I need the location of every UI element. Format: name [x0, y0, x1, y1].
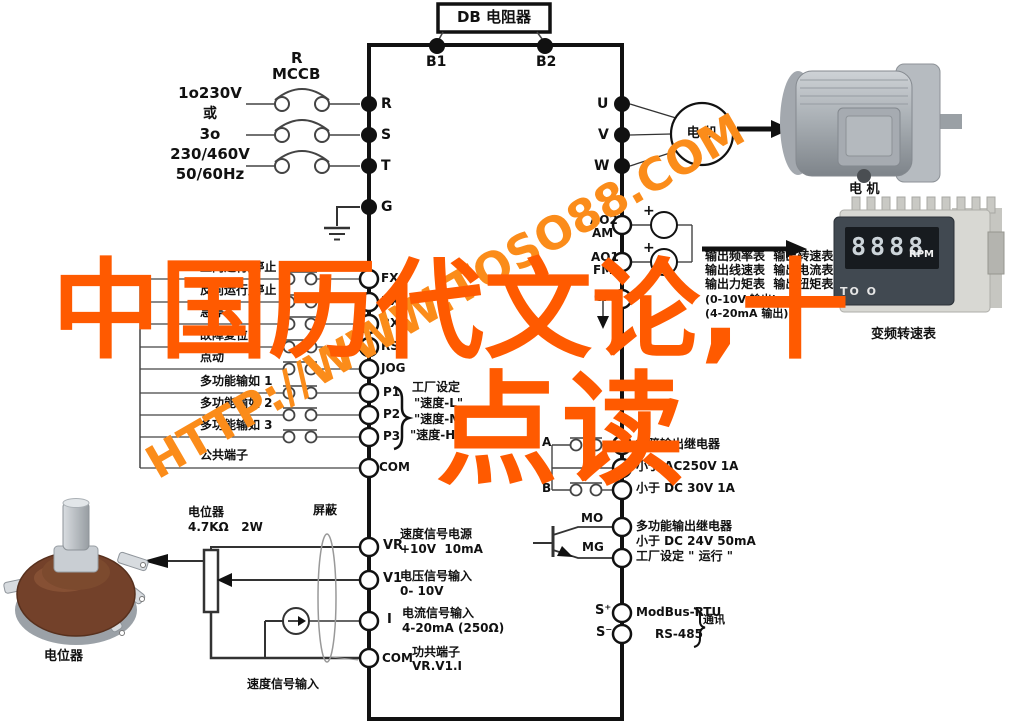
terminal-com: COM	[379, 461, 410, 475]
shield-ellipse	[318, 534, 358, 662]
shield-label: 屏蔽	[313, 504, 337, 518]
terminal-i: I	[387, 613, 392, 628]
power-spec-1: 1o230V	[160, 85, 260, 102]
potentiometer-symbol-wiring	[168, 547, 360, 658]
mo-desc-1: 多功能输出继电器	[636, 520, 732, 534]
rpm-display-unit: RPM	[909, 249, 934, 260]
mo-desc-3: 工厂设定 " 运行 "	[636, 550, 733, 564]
v1-desc-1: 电压信号输入	[400, 570, 472, 584]
comm-label: 通讯	[703, 614, 725, 627]
vr-desc-2: +10V 10mA	[400, 543, 483, 557]
terminal-mg: MG	[582, 541, 604, 555]
mccb-label: MCCB	[272, 66, 320, 83]
com2-desc-1: 功共端子	[412, 646, 460, 660]
vr-desc-1: 速度信号电源	[400, 528, 472, 542]
pot-spec: 4.7KΩ 2W	[188, 521, 263, 535]
b1-label: B1	[426, 54, 446, 70]
rpm-meter-label: 变频转速表	[871, 328, 936, 343]
power-spec-5: 50/60Hz	[160, 166, 260, 183]
pot-photo-label: 电位器	[44, 650, 83, 665]
pot-label: 电位器	[188, 506, 224, 520]
i-desc-2: 4-20mA (250Ω)	[402, 622, 504, 636]
motor-photo-label: 电 机	[849, 183, 880, 198]
power-spec-3: 3o	[160, 126, 260, 143]
mccb-breaker-symbol	[246, 89, 360, 173]
terminal-t: T	[381, 158, 391, 174]
motor-photo	[780, 64, 962, 183]
terminal-p2: P2	[383, 408, 400, 422]
terminal-u: U	[597, 96, 608, 112]
b2-label: B2	[536, 54, 556, 70]
terminal-mo: MO	[581, 512, 603, 526]
terminal-p1: P1	[383, 386, 400, 400]
terminal-p3: P3	[383, 430, 400, 444]
ground-symbol	[324, 207, 360, 240]
wiring-diagram-page: DB 电阻器 B1 B2 1o230V 或 3o 230/460V 50/60H…	[0, 0, 1013, 728]
terminal-v: V	[598, 127, 609, 143]
terminal-s-plus: S⁺	[595, 604, 611, 619]
power-spec-2: 或	[160, 106, 260, 122]
mo-desc-2: 小于 DC 24V 50mA	[636, 535, 756, 549]
emitter-arrow	[557, 546, 573, 557]
power-spec-4: 230/460V	[160, 146, 260, 163]
watermark-title-line2: 点读	[436, 370, 688, 492]
terminal-s-minus: S⁻	[596, 626, 612, 641]
terminal-r: R	[381, 96, 392, 112]
db-resistor-label: DB 电阻器	[438, 9, 550, 26]
speed-input-label: 速度信号输入	[247, 678, 319, 692]
terminal-g: G	[381, 199, 393, 215]
terminal-s: S	[381, 127, 391, 143]
com2-desc-2: VR.V1.I	[412, 660, 462, 674]
watermark-title-line1: 中国历代文论,十	[52, 258, 849, 366]
rs485-label: RS-485	[655, 628, 703, 642]
terminal-com2: COM	[382, 652, 413, 666]
i-desc-1: 电流信号输入	[402, 607, 474, 621]
v1-desc-2: 0- 10V	[400, 585, 444, 599]
potentiometer-photo	[3, 499, 149, 646]
